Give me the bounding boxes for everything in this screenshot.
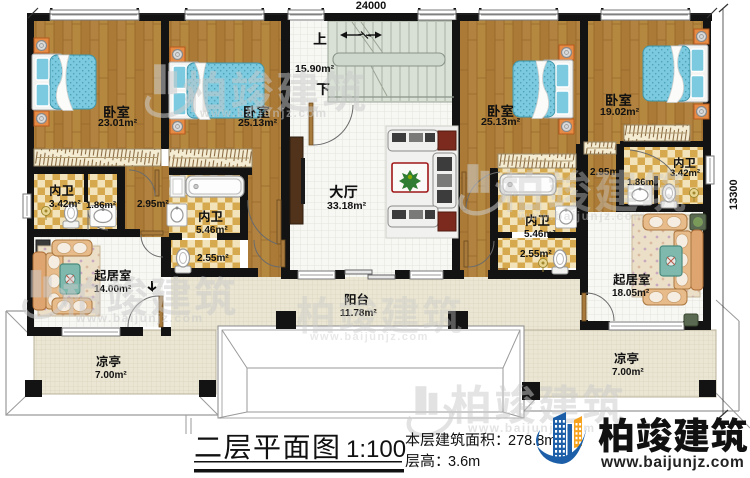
svg-text:33.18m²: 33.18m² xyxy=(327,200,367,212)
svg-text:19.02m²: 19.02m² xyxy=(600,106,640,118)
svg-text:2.95m²: 2.95m² xyxy=(137,199,169,210)
svg-text:www.baijunjz.com: www.baijunjz.com xyxy=(517,209,646,223)
svg-text:www.baijunjz.com: www.baijunjz.com xyxy=(75,311,204,325)
svg-text:www.baijunjz.com: www.baijunjz.com xyxy=(309,331,429,343)
svg-text:24000: 24000 xyxy=(356,0,387,12)
svg-text:3.42m²: 3.42m² xyxy=(49,199,81,210)
svg-text:2.55m²: 2.55m² xyxy=(520,249,552,260)
svg-text:3.6m: 3.6m xyxy=(448,454,480,470)
svg-text:5.46m²: 5.46m² xyxy=(524,229,556,240)
svg-text:1.86m²: 1.86m² xyxy=(86,200,116,211)
svg-text:5.46m²: 5.46m² xyxy=(196,225,228,236)
svg-text:7.00m²: 7.00m² xyxy=(612,367,644,378)
svg-text:25.13m²: 25.13m² xyxy=(481,116,521,128)
svg-text:18.05m²: 18.05m² xyxy=(612,288,650,299)
svg-text:23.01m²: 23.01m² xyxy=(98,117,138,129)
svg-text:1:100: 1:100 xyxy=(346,436,406,463)
svg-text:www.baijunjz.com: www.baijunjz.com xyxy=(199,106,328,120)
svg-text:7.00m²: 7.00m² xyxy=(95,370,127,381)
svg-text:13300: 13300 xyxy=(728,179,740,210)
svg-text:www.baijunjz.com: www.baijunjz.com xyxy=(600,454,744,471)
svg-text:2.55m²: 2.55m² xyxy=(197,253,229,264)
